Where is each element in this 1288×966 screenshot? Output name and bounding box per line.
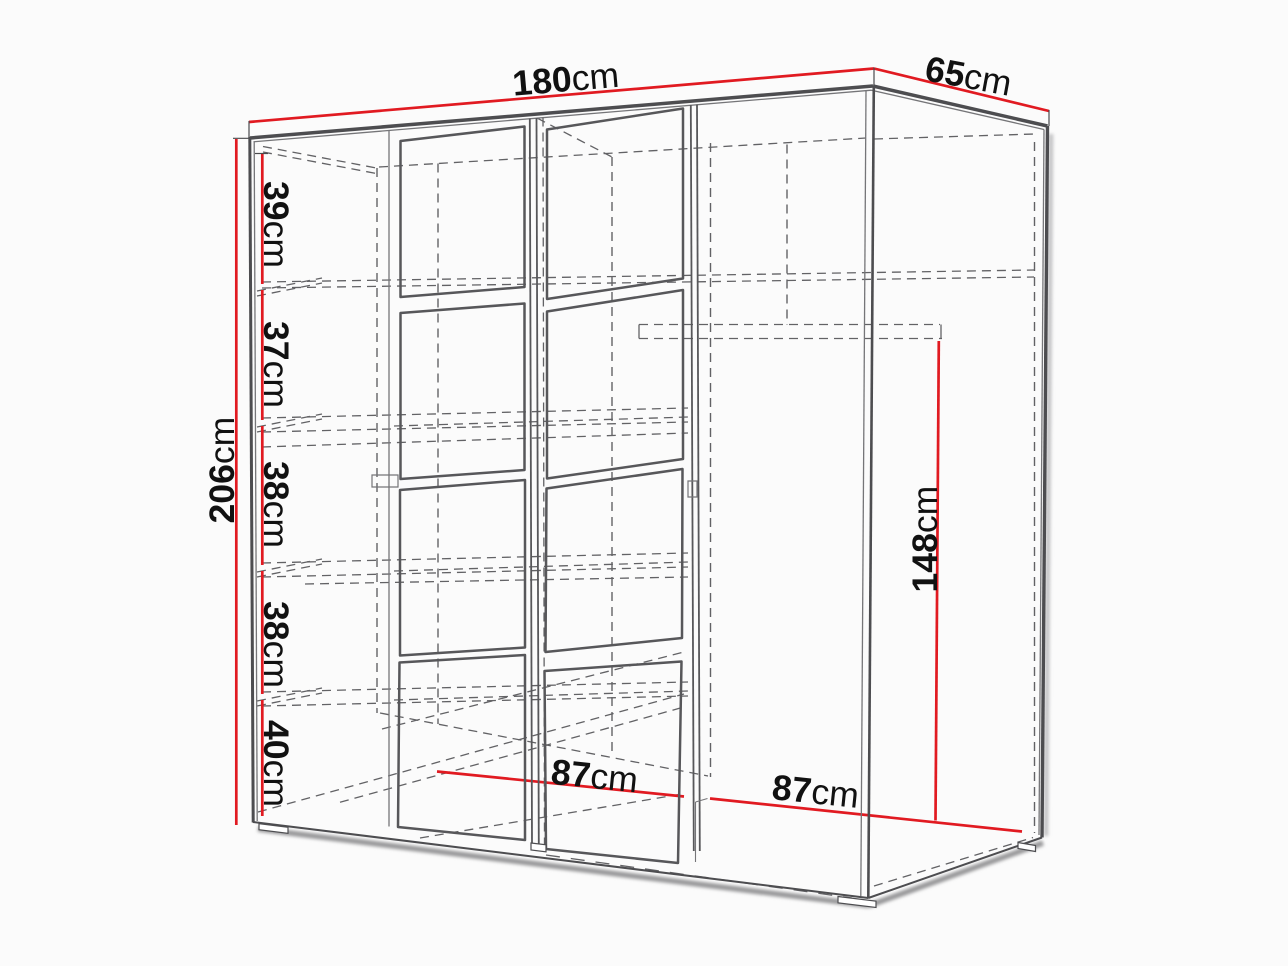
svg-text:39cm: 39cm <box>256 181 296 268</box>
svg-text:206cm: 206cm <box>202 417 242 524</box>
svg-text:148cm: 148cm <box>905 486 945 593</box>
svg-text:38cm: 38cm <box>256 601 296 688</box>
svg-text:37cm: 37cm <box>256 321 296 408</box>
svg-text:38cm: 38cm <box>256 461 296 548</box>
svg-text:40cm: 40cm <box>256 720 296 807</box>
